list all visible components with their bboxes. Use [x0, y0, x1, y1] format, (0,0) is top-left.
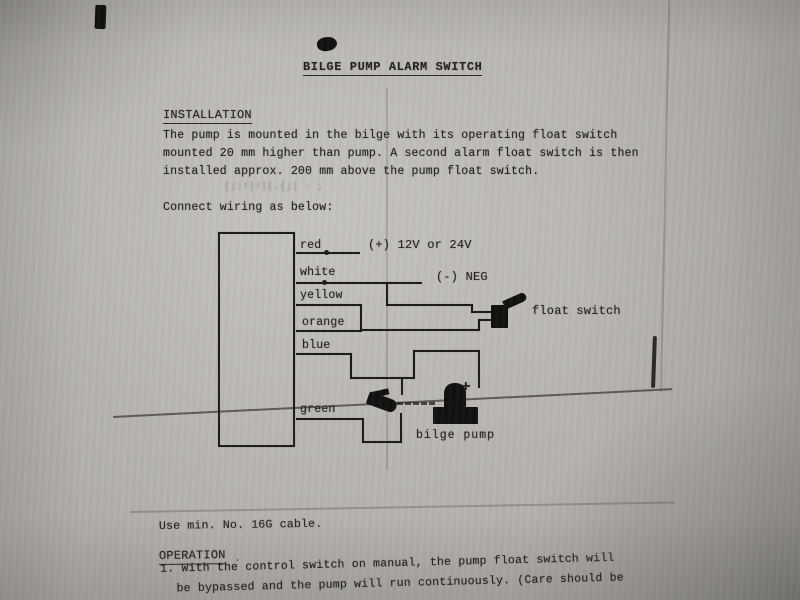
blue-wire-step-up: [413, 350, 415, 379]
float-switch-top-stub: [471, 311, 493, 313]
fold-crease-center-vertical: [386, 88, 388, 470]
white-wire-node: [322, 280, 327, 285]
connect-wiring-note: Connect wiring as below:: [163, 202, 333, 214]
installation-heading: INSTALLATION: [163, 109, 252, 124]
photocopy-mark-topcenter: [316, 35, 338, 52]
green-wire-low-run: [362, 441, 402, 443]
positive-terminal-label: (+) 12V or 24V: [368, 239, 472, 251]
blue-wire-pump-drop: [478, 350, 480, 388]
white-branch-run: [386, 304, 471, 306]
operation-item-1-line-1: 1. With the control switch on manual, th…: [160, 553, 615, 576]
float-switch-lever-icon: [502, 292, 528, 310]
pump-float-switch-dashes: [397, 402, 435, 405]
green-wire: [296, 418, 364, 420]
blue-wire: [296, 353, 352, 355]
negative-terminal-label: (-) NEG: [436, 271, 488, 283]
wire-label-red: red: [300, 240, 321, 252]
wire-label-orange: orange: [302, 317, 345, 329]
fold-crease-lower: [130, 501, 675, 512]
blue-wire-high-run: [413, 350, 480, 352]
wire-label-yellow: yellow: [300, 290, 343, 302]
float-switch-label: float switch: [532, 305, 621, 317]
wire-label-green: green: [300, 404, 336, 416]
wire-label-blue: blue: [302, 340, 330, 352]
page-title: BILGE PUMP ALARM SWITCH: [303, 61, 482, 76]
photographed-instruction-sheet: BILGE PUMP ALARM SWITCH INSTALLATION The…: [0, 0, 800, 600]
installation-line-3: installed approx. 200 mm above the pump …: [163, 166, 539, 178]
operation-item-1-line-2: be bypassed and the pump will run contin…: [176, 572, 631, 595]
ghost-text: (;:!|!|(.{;| : ;: [224, 183, 323, 193]
red-wire-node: [324, 250, 329, 255]
control-box: [218, 232, 295, 447]
white-wire-junction-drop: [386, 282, 388, 306]
installation-line-1: The pump is mounted in the bilge with it…: [163, 130, 617, 142]
yellow-orange-run: [360, 329, 480, 331]
photocopy-mark-topleft: [95, 5, 107, 29]
wire-label-white: white: [300, 267, 336, 279]
yellow-wire-step: [360, 304, 362, 331]
blue-wire-step-down: [350, 353, 352, 379]
green-wire-step: [362, 418, 364, 443]
paper-grain-overlay: [0, 0, 800, 600]
white-wire: [296, 282, 422, 284]
fold-crease-right-vertical: [660, 0, 670, 392]
blue-wire-low-run: [350, 377, 415, 379]
yellow-wire: [296, 304, 362, 306]
cable-note: Use min. No. 16G cable.: [159, 519, 322, 533]
pump-positive-sign: +: [461, 379, 471, 395]
bilge-pump-label: bilge pump: [416, 430, 495, 442]
bilge-pump-base-icon: [433, 407, 478, 424]
installation-line-2: mounted 20 mm higher than pump. A second…: [163, 148, 639, 160]
blue-wire-blob-drop: [401, 377, 403, 395]
green-wire-blob-up: [400, 413, 402, 443]
orange-wire: [296, 330, 362, 332]
photocopy-mark-right: [651, 336, 657, 388]
